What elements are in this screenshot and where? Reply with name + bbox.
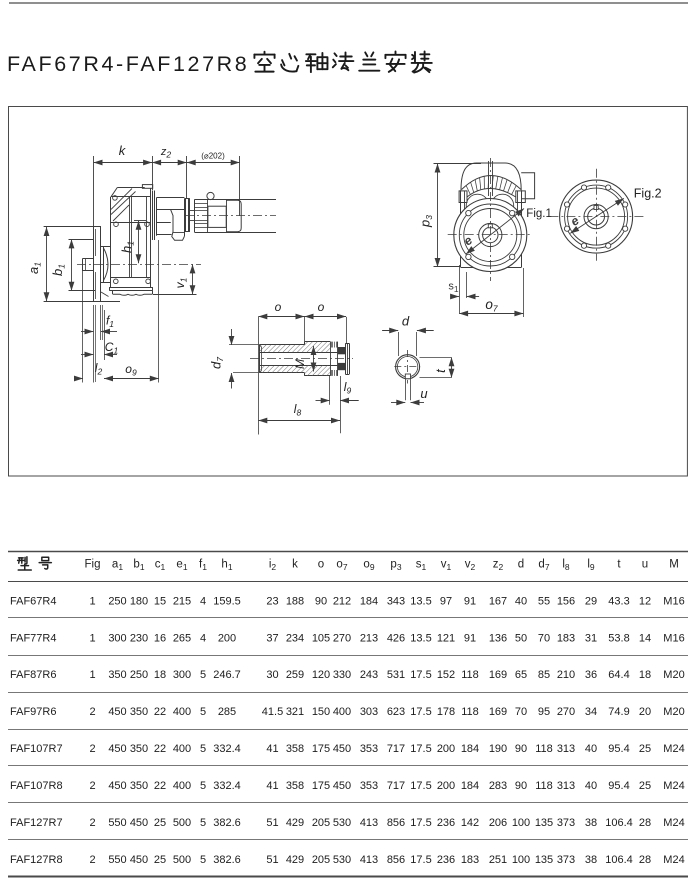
svg-text:300: 300 <box>108 633 126 645</box>
svg-text:64.4: 64.4 <box>608 669 629 681</box>
svg-text:243: 243 <box>360 669 378 681</box>
svg-text:500: 500 <box>173 854 191 866</box>
svg-text:95.4: 95.4 <box>608 780 629 792</box>
svg-text:313: 313 <box>557 743 575 755</box>
svg-text:91: 91 <box>464 595 476 607</box>
svg-text:215: 215 <box>173 595 191 607</box>
svg-text:41: 41 <box>266 780 278 792</box>
svg-text:400: 400 <box>173 706 191 718</box>
svg-text:o: o <box>318 559 324 571</box>
svg-text:350: 350 <box>130 706 148 718</box>
svg-text:51: 51 <box>266 854 278 866</box>
svg-text:90: 90 <box>315 595 327 607</box>
svg-text:118: 118 <box>535 743 553 755</box>
svg-text:400: 400 <box>173 743 191 755</box>
svg-text:v1: v1 <box>173 277 189 288</box>
svg-text:95.4: 95.4 <box>608 743 629 755</box>
svg-text:205: 205 <box>312 854 330 866</box>
svg-text:41: 41 <box>266 743 278 755</box>
svg-text:e1: e1 <box>176 559 187 573</box>
svg-text:b1: b1 <box>50 264 67 276</box>
svg-text:91: 91 <box>464 633 476 645</box>
svg-text:o: o <box>318 300 325 314</box>
svg-text:v2: v2 <box>465 559 476 573</box>
svg-text:100: 100 <box>512 817 530 829</box>
svg-text:120: 120 <box>312 669 330 681</box>
svg-text:70: 70 <box>515 706 527 718</box>
svg-text:97: 97 <box>440 595 452 607</box>
svg-text:18: 18 <box>639 669 651 681</box>
svg-text:300: 300 <box>173 669 191 681</box>
svg-text:41.5: 41.5 <box>262 706 283 718</box>
svg-text:25: 25 <box>639 780 651 792</box>
svg-text:135: 135 <box>535 817 553 829</box>
svg-text:22: 22 <box>154 706 166 718</box>
svg-text:M20: M20 <box>663 706 684 718</box>
svg-text:l8: l8 <box>294 402 302 418</box>
svg-text:856: 856 <box>387 817 405 829</box>
svg-text:d: d <box>402 314 410 329</box>
svg-text:4: 4 <box>200 633 206 645</box>
svg-text:23: 23 <box>266 595 278 607</box>
svg-text:38: 38 <box>585 817 597 829</box>
svg-text:450: 450 <box>130 817 148 829</box>
svg-text:350: 350 <box>130 780 148 792</box>
svg-text:200: 200 <box>437 780 455 792</box>
svg-text:330: 330 <box>333 669 351 681</box>
svg-text:106.4: 106.4 <box>605 817 633 829</box>
svg-text:717: 717 <box>387 743 405 755</box>
svg-text:450: 450 <box>333 743 351 755</box>
svg-text:FAF127R7: FAF127R7 <box>10 817 63 829</box>
svg-text:270: 270 <box>557 706 575 718</box>
svg-text:121: 121 <box>437 633 455 645</box>
svg-text:43.3: 43.3 <box>608 595 629 607</box>
svg-text:M16: M16 <box>663 595 684 607</box>
svg-text:4: 4 <box>200 595 206 607</box>
svg-text:b1: b1 <box>133 559 144 573</box>
svg-text:40: 40 <box>515 595 527 607</box>
svg-text:(⌀202): (⌀202) <box>201 152 225 161</box>
svg-text:l9: l9 <box>587 559 595 573</box>
svg-text:k: k <box>119 143 127 158</box>
svg-text:40: 40 <box>585 780 597 792</box>
svg-text:12: 12 <box>639 595 651 607</box>
svg-text:283: 283 <box>489 780 507 792</box>
svg-text:175: 175 <box>312 743 330 755</box>
svg-text:85: 85 <box>538 669 550 681</box>
svg-text:184: 184 <box>360 595 378 607</box>
svg-text:210: 210 <box>557 669 575 681</box>
svg-text:h1: h1 <box>221 559 232 573</box>
svg-text:22: 22 <box>154 743 166 755</box>
svg-text:95: 95 <box>538 706 550 718</box>
svg-text:FAF107R7: FAF107R7 <box>10 743 63 755</box>
svg-text:FAF107R8: FAF107R8 <box>10 780 63 792</box>
svg-text:623: 623 <box>387 706 405 718</box>
svg-text:l2: l2 <box>95 361 103 377</box>
svg-text:100: 100 <box>512 854 530 866</box>
svg-text:M: M <box>293 359 307 369</box>
svg-text:M24: M24 <box>663 780 684 792</box>
svg-text:53.8: 53.8 <box>608 633 629 645</box>
svg-text:5: 5 <box>200 743 206 755</box>
svg-text:FAF87R6: FAF87R6 <box>10 669 56 681</box>
svg-text:o: o <box>275 300 282 314</box>
svg-text:183: 183 <box>461 854 479 866</box>
svg-text:17.5: 17.5 <box>410 706 431 718</box>
svg-text:Fig.2: Fig.2 <box>634 187 662 201</box>
svg-text:350: 350 <box>130 743 148 755</box>
svg-text:e: e <box>568 213 581 229</box>
svg-text:450: 450 <box>108 706 126 718</box>
svg-text:z2: z2 <box>493 559 504 573</box>
svg-text:d7: d7 <box>209 357 226 369</box>
svg-text:90: 90 <box>515 743 527 755</box>
svg-text:17.5: 17.5 <box>410 743 431 755</box>
svg-text:5: 5 <box>200 669 206 681</box>
svg-text:167: 167 <box>489 595 507 607</box>
svg-text:169: 169 <box>489 669 507 681</box>
svg-text:350: 350 <box>108 669 126 681</box>
svg-text:230: 230 <box>130 633 148 645</box>
svg-text:FAF67R4: FAF67R4 <box>10 595 56 607</box>
svg-text:236: 236 <box>437 854 455 866</box>
svg-text:k: k <box>292 559 298 571</box>
svg-text:17.5: 17.5 <box>410 780 431 792</box>
svg-text:38: 38 <box>585 854 597 866</box>
svg-text:28: 28 <box>639 817 651 829</box>
svg-text:2: 2 <box>89 780 95 792</box>
svg-text:353: 353 <box>360 743 378 755</box>
svg-text:5: 5 <box>200 780 206 792</box>
svg-text:321: 321 <box>286 706 304 718</box>
svg-text:1: 1 <box>89 595 95 607</box>
svg-text:2: 2 <box>89 743 95 755</box>
svg-text:500: 500 <box>173 817 191 829</box>
svg-text:51: 51 <box>266 817 278 829</box>
svg-text:188: 188 <box>286 595 304 607</box>
svg-text:200: 200 <box>218 633 236 645</box>
svg-text:M24: M24 <box>663 817 684 829</box>
svg-text:22: 22 <box>154 780 166 792</box>
svg-text:285: 285 <box>218 706 236 718</box>
svg-text:142: 142 <box>461 817 479 829</box>
svg-text:106.4: 106.4 <box>605 854 633 866</box>
svg-text:343: 343 <box>387 595 405 607</box>
svg-text:13.5: 13.5 <box>410 595 431 607</box>
svg-text:i2: i2 <box>269 559 277 573</box>
svg-text:o7: o7 <box>485 297 498 314</box>
svg-text:136: 136 <box>489 633 507 645</box>
svg-text:v1: v1 <box>441 559 452 573</box>
svg-text:429: 429 <box>286 854 304 866</box>
svg-text:1: 1 <box>89 669 95 681</box>
svg-text:400: 400 <box>333 706 351 718</box>
svg-text:t: t <box>433 368 448 373</box>
svg-text:400: 400 <box>173 780 191 792</box>
svg-text:450: 450 <box>108 743 126 755</box>
svg-text:25: 25 <box>154 854 166 866</box>
svg-text:s1: s1 <box>448 281 459 295</box>
svg-text:2: 2 <box>89 817 95 829</box>
svg-text:180: 180 <box>130 595 148 607</box>
svg-text:530: 530 <box>333 854 351 866</box>
svg-text:u: u <box>642 559 648 571</box>
svg-text:118: 118 <box>461 669 479 681</box>
svg-text:856: 856 <box>387 854 405 866</box>
svg-text:5: 5 <box>200 706 206 718</box>
svg-text:234: 234 <box>286 633 304 645</box>
svg-text:426: 426 <box>387 633 405 645</box>
svg-text:358: 358 <box>286 743 304 755</box>
svg-text:25: 25 <box>154 817 166 829</box>
svg-text:f1: f1 <box>199 559 207 573</box>
svg-text:175: 175 <box>312 780 330 792</box>
svg-text:429: 429 <box>286 817 304 829</box>
svg-text:550: 550 <box>108 817 126 829</box>
svg-text:213: 213 <box>360 633 378 645</box>
svg-text:450: 450 <box>333 780 351 792</box>
svg-text:259: 259 <box>286 669 304 681</box>
svg-text:d: d <box>518 559 524 571</box>
svg-text:a1: a1 <box>112 559 123 573</box>
svg-text:16: 16 <box>154 633 166 645</box>
svg-text:65: 65 <box>515 669 527 681</box>
svg-text:c1: c1 <box>155 559 166 573</box>
svg-text:332.4: 332.4 <box>213 743 241 755</box>
svg-text:178: 178 <box>437 706 455 718</box>
svg-text:o9: o9 <box>125 362 137 378</box>
svg-text:FAF67R4-FAF127R8: FAF67R4-FAF127R8 <box>7 52 249 76</box>
svg-text:90: 90 <box>515 780 527 792</box>
svg-text:20: 20 <box>639 706 651 718</box>
svg-text:152: 152 <box>437 669 455 681</box>
svg-text:251: 251 <box>489 854 507 866</box>
svg-text:15: 15 <box>154 595 166 607</box>
svg-text:5: 5 <box>200 854 206 866</box>
svg-text:M24: M24 <box>663 854 684 866</box>
svg-text:184: 184 <box>461 780 479 792</box>
svg-text:FAF77R4: FAF77R4 <box>10 633 56 645</box>
svg-text:z2: z2 <box>160 146 172 160</box>
svg-text:105: 105 <box>312 633 330 645</box>
svg-text:184: 184 <box>461 743 479 755</box>
svg-text:40: 40 <box>585 743 597 755</box>
svg-text:530: 530 <box>333 817 351 829</box>
svg-text:206: 206 <box>489 817 507 829</box>
svg-text:30: 30 <box>266 669 278 681</box>
svg-text:1: 1 <box>89 633 95 645</box>
svg-text:373: 373 <box>557 817 575 829</box>
svg-text:74.9: 74.9 <box>608 706 629 718</box>
svg-text:55: 55 <box>538 595 550 607</box>
svg-text:382.6: 382.6 <box>213 854 241 866</box>
svg-text:246.7: 246.7 <box>213 669 241 681</box>
svg-text:FAF127R8: FAF127R8 <box>10 854 63 866</box>
svg-text:190: 190 <box>489 743 507 755</box>
svg-text:25: 25 <box>639 743 651 755</box>
svg-text:2: 2 <box>89 706 95 718</box>
svg-text:17.5: 17.5 <box>410 817 431 829</box>
svg-text:t: t <box>617 559 621 571</box>
svg-text:Fig.1: Fig.1 <box>526 208 552 220</box>
svg-text:332.4: 332.4 <box>213 780 241 792</box>
svg-text:205: 205 <box>312 817 330 829</box>
svg-text:C1: C1 <box>105 340 119 356</box>
svg-text:450: 450 <box>108 780 126 792</box>
svg-text:o9: o9 <box>363 559 374 573</box>
svg-text:50: 50 <box>515 633 527 645</box>
svg-text:550: 550 <box>108 854 126 866</box>
svg-text:382.6: 382.6 <box>213 817 241 829</box>
svg-text:250: 250 <box>130 669 148 681</box>
svg-text:717: 717 <box>387 780 405 792</box>
svg-text:f1: f1 <box>106 314 114 330</box>
svg-text:183: 183 <box>557 633 575 645</box>
svg-text:373: 373 <box>557 854 575 866</box>
svg-text:353: 353 <box>360 780 378 792</box>
svg-text:5: 5 <box>200 817 206 829</box>
svg-text:135: 135 <box>535 854 553 866</box>
svg-text:l8: l8 <box>562 559 570 573</box>
svg-text:413: 413 <box>360 854 378 866</box>
svg-text:303: 303 <box>360 706 378 718</box>
svg-text:31: 31 <box>585 633 597 645</box>
svg-text:h1: h1 <box>119 241 136 253</box>
svg-text:250: 250 <box>108 595 126 607</box>
svg-text:s1: s1 <box>416 559 427 573</box>
svg-text:13.5: 13.5 <box>410 633 431 645</box>
svg-text:M: M <box>669 559 679 571</box>
svg-text:265: 265 <box>173 633 191 645</box>
svg-text:M16: M16 <box>663 633 684 645</box>
svg-text:70: 70 <box>538 633 550 645</box>
svg-text:200: 200 <box>437 743 455 755</box>
svg-text:a1: a1 <box>26 262 43 274</box>
svg-text:36: 36 <box>585 669 597 681</box>
svg-text:17.5: 17.5 <box>410 854 431 866</box>
svg-text:u: u <box>420 386 427 401</box>
svg-text:M24: M24 <box>663 743 684 755</box>
svg-text:FAF97R6: FAF97R6 <box>10 706 56 718</box>
svg-text:169: 169 <box>489 706 507 718</box>
svg-text:212: 212 <box>333 595 351 607</box>
svg-text:17.5: 17.5 <box>410 669 431 681</box>
svg-text:2: 2 <box>89 854 95 866</box>
svg-text:l9: l9 <box>344 380 352 396</box>
svg-text:150: 150 <box>312 706 330 718</box>
svg-text:Fig: Fig <box>85 559 101 571</box>
svg-text:118: 118 <box>461 706 479 718</box>
svg-text:28: 28 <box>639 854 651 866</box>
svg-text:159.5: 159.5 <box>213 595 241 607</box>
svg-text:313: 313 <box>557 780 575 792</box>
svg-text:p3: p3 <box>418 215 435 228</box>
svg-text:118: 118 <box>535 780 553 792</box>
svg-text:156: 156 <box>557 595 575 607</box>
svg-text:531: 531 <box>387 669 405 681</box>
svg-text:d7: d7 <box>538 559 549 573</box>
svg-text:M20: M20 <box>663 669 684 681</box>
svg-text:450: 450 <box>130 854 148 866</box>
svg-text:413: 413 <box>360 817 378 829</box>
svg-text:o7: o7 <box>336 559 347 573</box>
svg-text:37: 37 <box>266 633 278 645</box>
svg-text:270: 270 <box>333 633 351 645</box>
svg-text:236: 236 <box>437 817 455 829</box>
svg-text:29: 29 <box>585 595 597 607</box>
svg-text:14: 14 <box>639 633 651 645</box>
svg-text:p3: p3 <box>390 559 401 573</box>
svg-text:358: 358 <box>286 780 304 792</box>
svg-text:18: 18 <box>154 669 166 681</box>
svg-text:34: 34 <box>585 706 597 718</box>
